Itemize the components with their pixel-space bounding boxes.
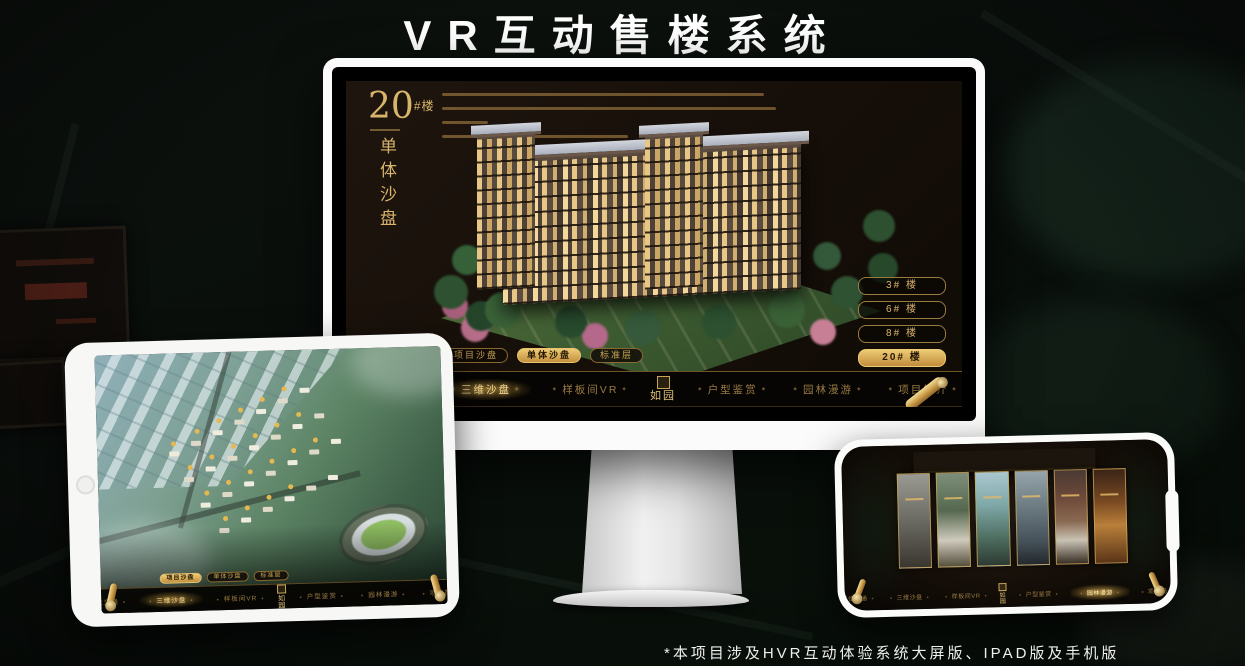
nav-floorplan[interactable]: 户型鉴赏 xyxy=(295,590,348,601)
building-3d-model[interactable] xyxy=(441,136,881,384)
page-title: VR互动售楼系统 xyxy=(0,2,1245,63)
project-logo: 如园 xyxy=(650,376,676,402)
nav-showroom-vr[interactable]: 样板间VR xyxy=(549,382,632,397)
model-building-tower xyxy=(645,132,703,289)
model-building-tower xyxy=(477,132,535,289)
aerial-mist xyxy=(350,346,448,398)
nav-showroom-vr[interactable]: 样板间VR xyxy=(941,590,991,600)
nav-3d-sandtable[interactable]: 三维沙盘 xyxy=(139,591,204,609)
logo-text: 如园 xyxy=(650,391,676,402)
gallery-panel-4[interactable] xyxy=(1014,470,1049,566)
tab-project-sandtable[interactable]: 项目沙盘 xyxy=(159,573,201,584)
gallery-panel-5[interactable] xyxy=(1053,469,1088,565)
tablet-device: 项目沙盘 单体沙盘 标准层 区位交通 三维沙盘 样板间VR 如园 户型鉴赏 园林… xyxy=(64,333,460,628)
nav-3d-sandtable[interactable]: 三维沙盘 xyxy=(886,591,933,601)
monitor-stand-neck xyxy=(582,448,742,594)
bg-foliage xyxy=(1005,60,1245,280)
tab-standard-floor[interactable]: 标准层 xyxy=(253,570,288,581)
building-selector-group: 3# 楼 6# 楼 8# 楼 20# 楼 xyxy=(858,277,946,367)
logo-text: 如园 xyxy=(277,595,286,609)
poster-canvas: VR互动售楼系统 20#楼 单体沙盘 xyxy=(0,0,1245,666)
nav-3d-sandtable[interactable]: 三维沙盘 xyxy=(441,379,530,400)
phone-screen: 区位交通 三维沙盘 样板间VR 如园 户型鉴赏 园林漫游 项目简介 xyxy=(841,439,1171,611)
project-logo: 如园 xyxy=(277,584,287,609)
gallery-panel-2[interactable] xyxy=(936,472,971,568)
logo-text: 如园 xyxy=(999,593,1007,605)
gallery-panel-1[interactable] xyxy=(897,473,932,569)
tab-standard-floor[interactable]: 标准层 xyxy=(590,348,643,363)
project-logo: 如园 xyxy=(999,583,1008,605)
phone-device: 区位交通 三维沙盘 样板间VR 如园 户型鉴赏 园林漫游 项目简介 xyxy=(834,432,1178,618)
gallery-panel-6[interactable] xyxy=(1092,468,1127,564)
building-number-suffix: #楼 xyxy=(414,99,435,113)
nav-garden-roam[interactable]: 园林漫游 xyxy=(789,382,866,397)
nav-garden-roam[interactable]: 园林漫游 xyxy=(357,588,410,599)
tab-project-sandtable[interactable]: 项目沙盘 xyxy=(444,348,508,363)
tablet-screen: 项目沙盘 单体沙盘 标准层 区位交通 三维沙盘 样板间VR 如园 户型鉴赏 园林… xyxy=(94,346,447,614)
aerial-buildings xyxy=(169,451,179,456)
nav-floorplan[interactable]: 户型鉴赏 xyxy=(694,382,771,397)
building-button-8[interactable]: 8# 楼 xyxy=(858,325,946,343)
gallery-panel-3[interactable] xyxy=(975,471,1010,567)
building-button-20[interactable]: 20# 楼 xyxy=(858,349,946,367)
nav-floorplan[interactable]: 户型鉴赏 xyxy=(1015,588,1062,598)
logo-seal-icon xyxy=(999,583,1007,591)
building-heading: 20#楼 单体沙盘 xyxy=(368,89,435,233)
sub-tab-group: 项目沙盘 单体沙盘 标准层 xyxy=(444,348,643,363)
heading-english-caption xyxy=(370,129,400,131)
project-footnote: *本项目涉及HVR互动体验系统大屏版、IPAD版及手机版 xyxy=(664,642,1119,663)
nav-showroom-vr[interactable]: 样板间VR xyxy=(212,592,268,604)
bg-certificate-plaque xyxy=(0,360,68,431)
nav-garden-roam[interactable]: 园林漫游 xyxy=(1070,584,1130,600)
tab-single-sandtable[interactable]: 单体沙盘 xyxy=(206,571,248,582)
building-heading-vertical: 单体沙盘 xyxy=(374,137,399,233)
tab-single-sandtable[interactable]: 单体沙盘 xyxy=(517,348,581,363)
logo-seal-icon xyxy=(657,376,670,389)
logo-seal-icon xyxy=(277,584,286,593)
monitor-stand-base xyxy=(553,590,749,607)
building-number: 20 xyxy=(368,86,414,127)
tablet-home-button[interactable] xyxy=(76,475,96,495)
building-button-6[interactable]: 6# 楼 xyxy=(858,301,946,319)
gallery-panel-row xyxy=(897,468,1127,569)
phone-notch xyxy=(1165,490,1180,552)
building-number-badges xyxy=(171,441,176,446)
building-button-3[interactable]: 3# 楼 xyxy=(858,277,946,295)
